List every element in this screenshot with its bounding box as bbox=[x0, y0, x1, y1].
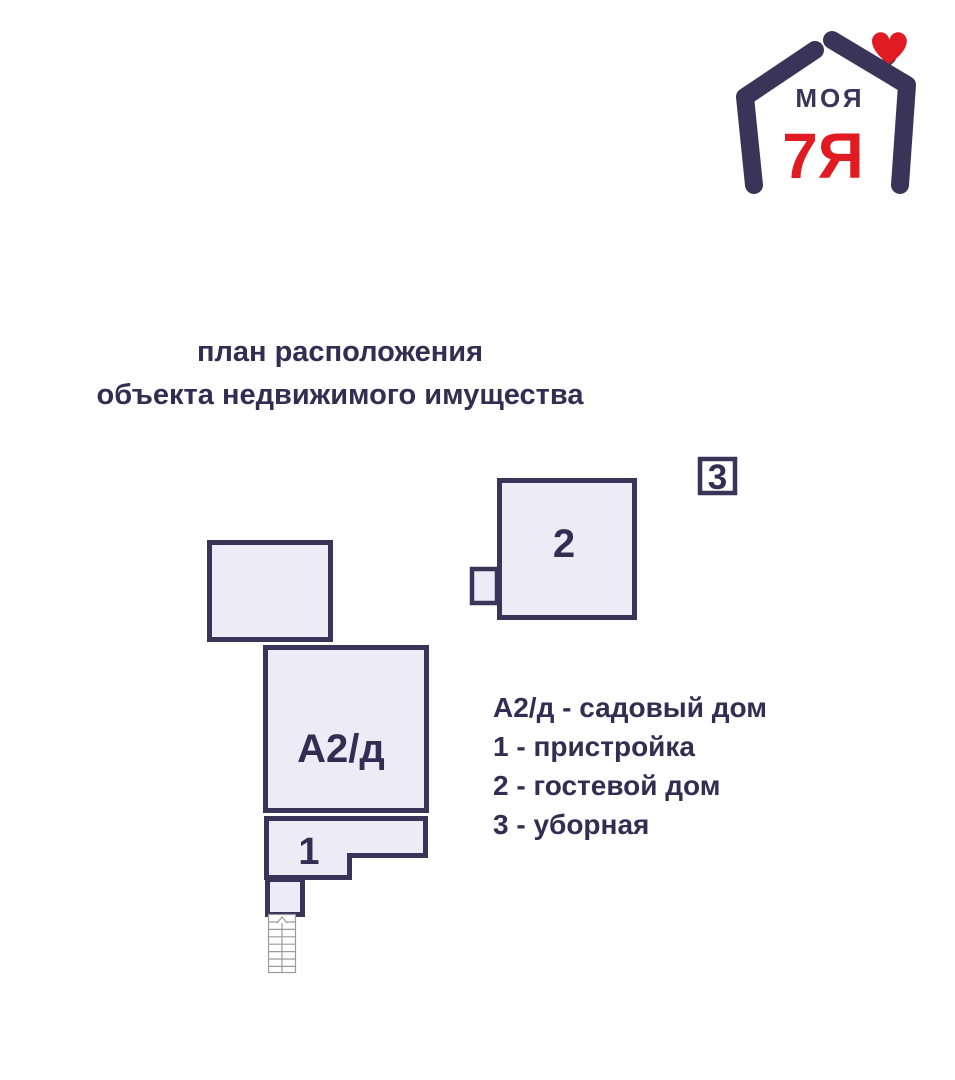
building-annex-label: 1 bbox=[298, 831, 319, 873]
building-guest-house-label: 2 bbox=[553, 522, 575, 566]
building-main-house-label: А2/д bbox=[297, 727, 385, 771]
legend: А2/д - садовый дом 1 - пристройка 2 - го… bbox=[493, 688, 767, 844]
stairs-icon bbox=[269, 915, 296, 973]
building-toilet-label: 3 bbox=[708, 458, 727, 497]
legend-item-toilet: 3 - уборная bbox=[493, 805, 767, 844]
building-porch bbox=[268, 880, 303, 915]
legend-item-guest-house: 2 - гостевой дом bbox=[493, 766, 767, 805]
site-plan: А2/д 1 2 3 bbox=[0, 0, 955, 1080]
page: МОЯ 7Я план расположения объекта недвижи… bbox=[0, 0, 955, 1080]
legend-item-annex: 1 - пристройка bbox=[493, 727, 767, 766]
legend-item-main-house: А2/д - садовый дом bbox=[493, 688, 767, 727]
building-annex bbox=[267, 819, 426, 878]
building-outbuilding bbox=[210, 543, 331, 640]
building-guest-house-appendage bbox=[472, 569, 497, 603]
